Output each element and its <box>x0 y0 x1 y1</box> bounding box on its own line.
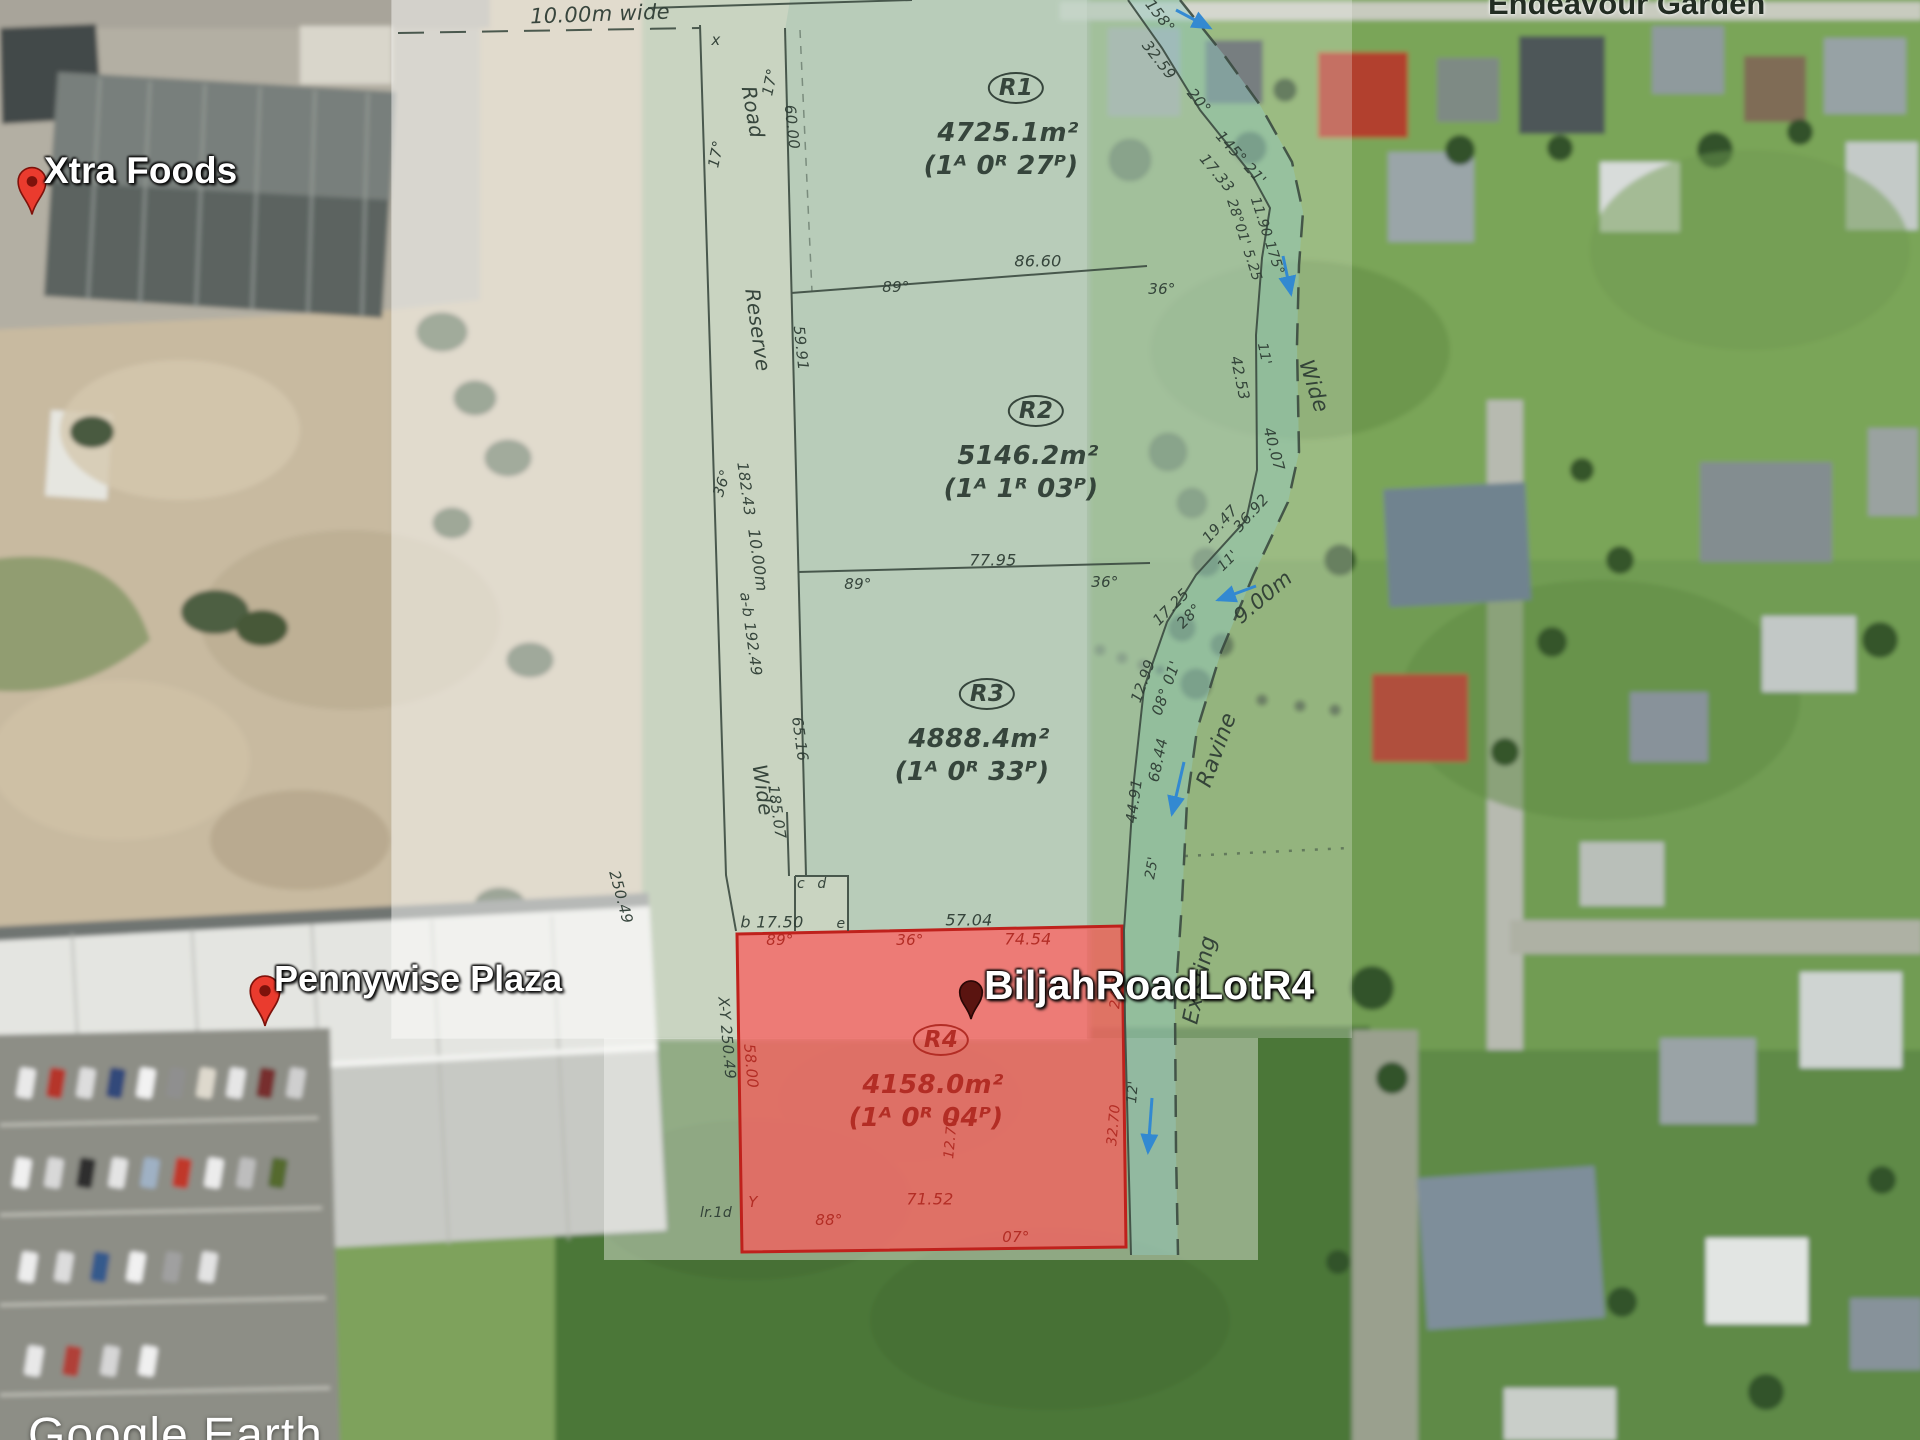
map-canvas[interactable]: 10.00m widex17°Road17°60.00Reserve59.913… <box>0 0 1920 1440</box>
placemark-label: BiljahRoadLotR4 <box>984 962 1314 1009</box>
placemark-label: Xtra Foods <box>44 150 237 192</box>
placemark-endeavour-garden[interactable]: Endeavour Garden <box>1488 0 1765 22</box>
survey-plan-linework <box>0 0 1920 1440</box>
placemark-label: Pennywise Plaza <box>274 958 562 1000</box>
dark-pin-icon <box>958 980 984 1020</box>
google-earth-attribution: Google Earth <box>28 1408 323 1440</box>
placemark-label: Endeavour Garden <box>1488 0 1765 21</box>
